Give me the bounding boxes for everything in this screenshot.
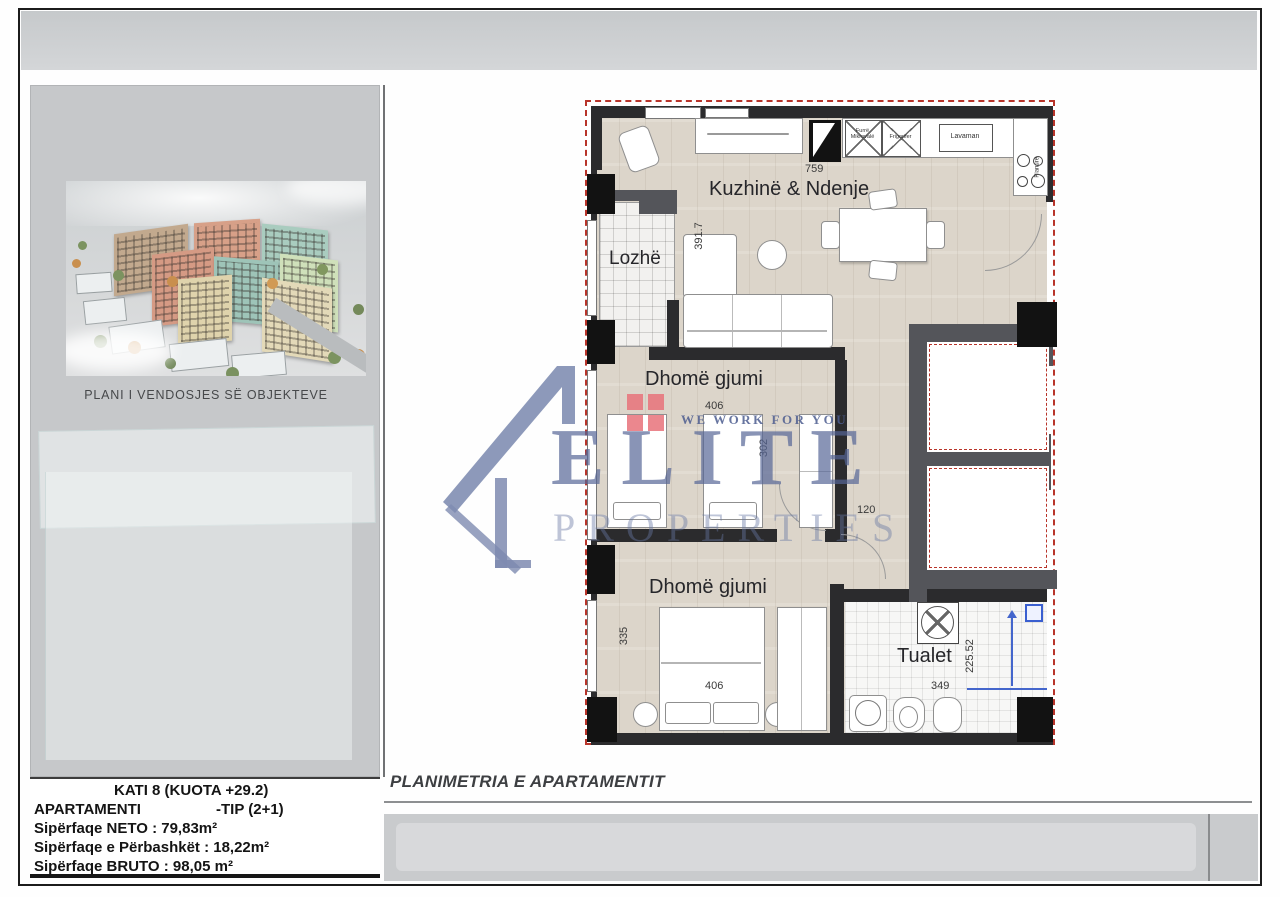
- sofa: [683, 294, 833, 348]
- window: [587, 600, 597, 692]
- footer-band-inner: [396, 823, 1196, 871]
- fridge-label: Frigorifer: [882, 134, 919, 140]
- plumbing-line-h: [967, 688, 1047, 690]
- info-area-shared: Sipërfaqe e Përbashkët : 18,22m²: [34, 839, 269, 856]
- sidebar-panel: PLANI I VENDOSJES SË OBJEKTEVE: [30, 85, 380, 777]
- pillow: [665, 702, 711, 724]
- counter-line: [707, 133, 789, 135]
- trees-autumn: [72, 259, 81, 268]
- rendering-caption: PLANI I VENDOSJES SË OBJEKTEVE: [31, 388, 381, 402]
- plan-title: PLANIMETRIA E APARTAMENTIT: [390, 772, 665, 792]
- toilet-seat: [899, 706, 918, 728]
- small-house: [83, 297, 127, 325]
- column: [587, 320, 615, 364]
- microwave-label: Furrë Mikrovalë: [845, 128, 880, 140]
- cooktop-burner: [1017, 176, 1028, 187]
- sink-label: Lavaman: [939, 133, 991, 141]
- washing-machine-drum: [921, 606, 954, 639]
- dining-table: [839, 208, 927, 262]
- wall-segment: [844, 589, 1047, 602]
- room-label-bedroom1: Dhomë gjumi: [645, 368, 763, 391]
- core-wall: [909, 324, 927, 602]
- vertical-divider: [383, 85, 385, 777]
- floor-plan: Furrë Mikrovalë Frigorifer Lavaman Pianu…: [585, 100, 1055, 745]
- dining-chair: [821, 221, 840, 249]
- core-niche: [927, 466, 1049, 570]
- column: [587, 697, 617, 742]
- column: [587, 174, 615, 214]
- apartment-info-block: KATI 8 (KUOTA +29.2) APARTAMENTI -TIP (2…: [30, 777, 380, 878]
- header-band: [21, 11, 1257, 70]
- wall-segment: [639, 201, 677, 214]
- footer-band: [384, 814, 1258, 881]
- building-block: [178, 275, 232, 346]
- dining-chair: [868, 188, 898, 211]
- column: [587, 545, 615, 594]
- core-wall: [909, 570, 1057, 589]
- dim-bedroom2-width: 406: [705, 680, 723, 692]
- side-table: [757, 240, 787, 270]
- plumbing-line-v: [1011, 614, 1013, 686]
- small-house: [231, 351, 287, 376]
- column: [1017, 302, 1057, 347]
- info-apartment-type: -TIP (2+1): [216, 801, 284, 818]
- small-house: [169, 338, 230, 372]
- info-area-net: Sipërfaqe NETO : 79,83m²: [34, 820, 217, 837]
- sofa-seatline: [687, 330, 827, 332]
- cooktop-burner: [1017, 154, 1030, 167]
- sofa-chaise: [683, 234, 737, 298]
- window: [705, 108, 749, 118]
- small-house: [75, 272, 112, 294]
- room-label-toilet: Tualet: [897, 645, 952, 668]
- nightstand: [633, 702, 658, 727]
- wardrobe: [799, 414, 833, 528]
- pillow: [713, 702, 759, 724]
- shower-fitting: [1025, 604, 1043, 622]
- core-wall: [927, 452, 1031, 466]
- title-underline: [384, 801, 1252, 803]
- pillow: [613, 502, 661, 520]
- dim-toilet-width: 349: [931, 680, 949, 692]
- room-label-kitchen: Kuzhinë & Ndenje: [709, 178, 869, 201]
- column: [1017, 697, 1053, 742]
- cloud: [66, 331, 174, 371]
- wall-segment: [595, 529, 777, 542]
- wall-segment: [835, 360, 847, 529]
- kitchen-counter: [695, 118, 803, 154]
- core-niche: [927, 342, 1049, 452]
- wall-segment: [830, 584, 844, 733]
- dim-toilet-height: 225.52: [964, 639, 976, 673]
- dining-chair: [926, 221, 945, 249]
- dim-bedroom1-height: 302: [758, 439, 770, 457]
- room-label-bedroom2: Dhomë gjumi: [649, 576, 767, 599]
- dim-corridor: 120: [857, 504, 875, 516]
- dim-bedroom1-width: 406: [705, 400, 723, 412]
- building-windows: [181, 279, 229, 342]
- info-floor: KATI 8 (KUOTA +29.2): [114, 782, 268, 799]
- window: [587, 220, 597, 316]
- window: [645, 107, 701, 119]
- trees-green: [78, 241, 87, 250]
- bath-sink-bowl: [855, 700, 881, 726]
- wardrobe: [777, 607, 827, 731]
- dim-kitchen-width: 759: [805, 163, 823, 175]
- blanket-line: [661, 662, 761, 664]
- wall-segment: [649, 347, 845, 360]
- pillow: [709, 502, 757, 520]
- document-page: PLANI I VENDOSJES SË OBJEKTEVE KATI 8 (K…: [0, 0, 1280, 897]
- building-rendering: [66, 181, 366, 376]
- wall-segment: [591, 733, 1053, 745]
- room-label-loggia: Lozhë: [609, 248, 661, 270]
- window: [587, 370, 597, 540]
- dim-bedroom2-height: 335: [618, 627, 630, 645]
- info-apartment-label: APARTAMENTI: [34, 801, 141, 818]
- wall-segment: [667, 300, 679, 350]
- cooktop-label: Pianurë: [1035, 152, 1042, 182]
- plumbing-arrow: [1007, 610, 1017, 618]
- wall-segment: [591, 118, 602, 170]
- dining-chair: [868, 260, 898, 282]
- bidet: [933, 697, 962, 733]
- door-leaf: [813, 123, 835, 157]
- erased-patch: [45, 472, 352, 760]
- info-area-gross: Sipërfaqe BRUTO : 98,05 m²: [34, 858, 233, 875]
- dim-kitchen-height: 391.7: [693, 222, 705, 250]
- footer-band-divider: [1208, 814, 1210, 881]
